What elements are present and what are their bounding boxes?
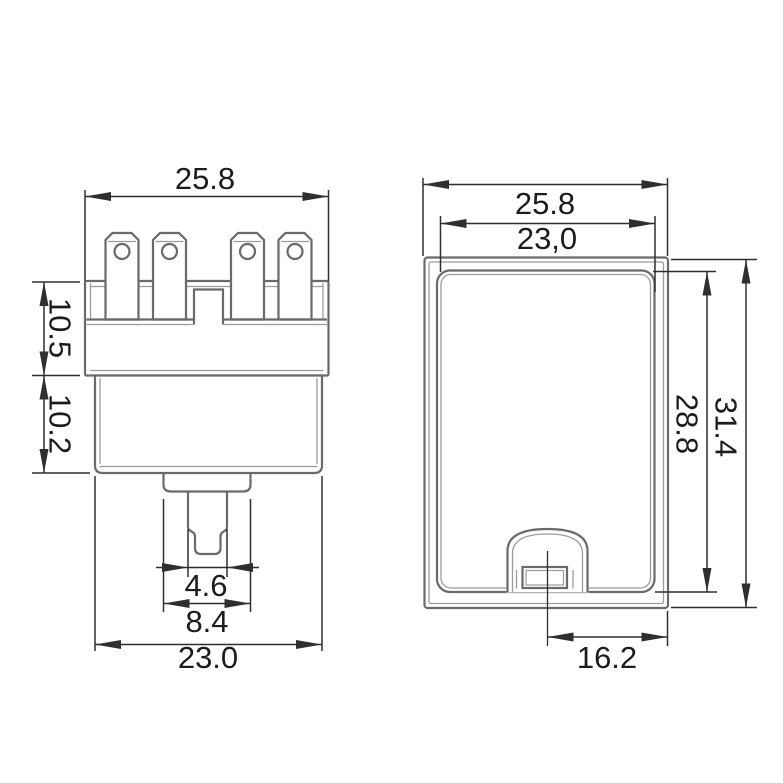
- blade-hole-3: [240, 244, 255, 259]
- front-collar: [164, 473, 251, 492]
- side-body: [425, 258, 669, 609]
- dim-label-front-collar-width: 8.4: [185, 604, 228, 639]
- arrow-up-icon: [742, 260, 751, 284]
- drawing-page: 25.8 10.5 10.2 4.6 8.4 23.0: [0, 0, 783, 783]
- blade-hole-1: [115, 244, 130, 259]
- dim-label-side-outer-height: 31.4: [709, 397, 744, 457]
- front-view: 25.8 10.5 10.2 4.6 8.4 23.0: [32, 161, 329, 675]
- arrow-down-icon: [742, 584, 751, 608]
- blade-hole-4: [288, 244, 303, 259]
- arrow-left-icon: [441, 219, 467, 228]
- arrow-right-icon: [296, 640, 322, 649]
- dim-label-side-inner-height: 28.8: [670, 394, 705, 454]
- arrow-left-icon: [423, 180, 449, 189]
- arrow-right-icon: [642, 633, 668, 642]
- arrow-right-icon: [629, 219, 655, 228]
- front-stem: [188, 492, 227, 555]
- dim-label-front-top-width: 25.8: [175, 161, 235, 196]
- side-view: 25.8 23,0 28.8 31.4 16.2: [423, 178, 757, 675]
- arrow-left-icon: [548, 633, 574, 642]
- dim-label-front-lower-height: 10.2: [43, 394, 78, 454]
- arrow-left-icon: [95, 640, 121, 649]
- dim-label-side-slot-offset: 16.2: [577, 640, 637, 675]
- front-lower-body: [95, 376, 322, 474]
- dim-label-side-inner-width: 23,0: [517, 221, 577, 256]
- arrow-down-icon: [703, 568, 712, 592]
- technical-drawing-canvas: 25.8 10.5 10.2 4.6 8.4 23.0: [0, 0, 783, 783]
- dim-label-front-stem-width: 4.6: [184, 568, 227, 603]
- arrow-right-icon: [303, 192, 329, 201]
- dim-label-front-upper-height: 10.5: [43, 298, 78, 358]
- arrow-right-icon: [642, 180, 668, 189]
- arrow-left-icon: [85, 192, 111, 201]
- arrow-left-icon: [227, 563, 253, 572]
- arrow-up-icon: [703, 272, 712, 296]
- dim-label-side-outer-width: 25.8: [515, 186, 575, 221]
- dim-label-front-bottom-width: 23.0: [178, 640, 238, 675]
- front-body: [85, 233, 329, 554]
- blade-hole-2: [162, 244, 177, 259]
